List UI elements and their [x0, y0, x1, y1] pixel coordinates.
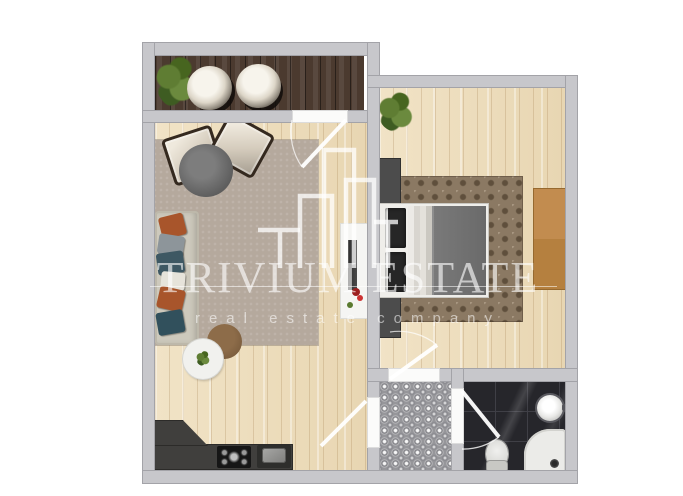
logo-building-center: [324, 150, 354, 268]
floor-plan-canvas: TRIVIUM ESTATE real estate company: [0, 0, 683, 496]
watermark-rule: [150, 286, 557, 287]
bedroom-door-leaf: [390, 345, 437, 379]
bedroom-door-arc: [390, 331, 437, 345]
bathroom-door-leaf: [462, 391, 499, 437]
logo-mark-right: [374, 222, 398, 268]
logo-mark-left: [258, 230, 300, 268]
buildings-outline-icon: [240, 145, 410, 275]
logo-building-right: [346, 180, 374, 268]
living-door-leaf: [321, 401, 366, 446]
logo-building-left: [300, 196, 332, 268]
bathroom-door-arc: [462, 437, 499, 449]
